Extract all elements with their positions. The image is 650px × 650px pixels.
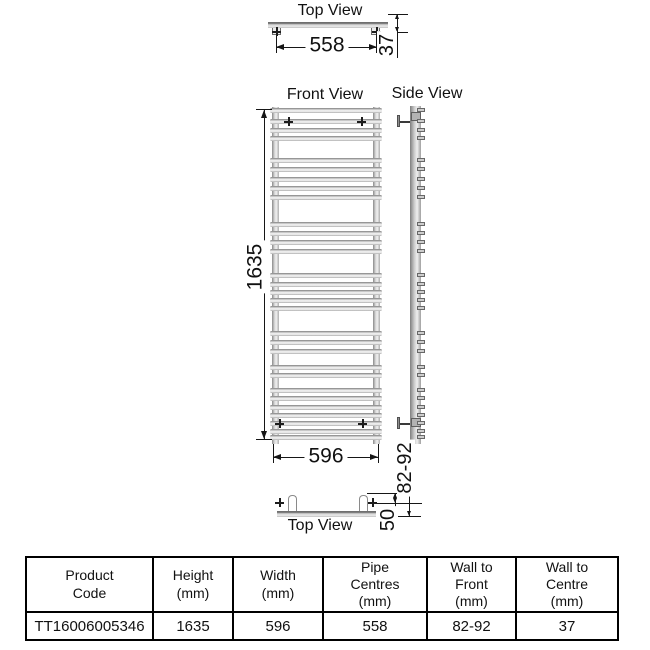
bar-end-knob (417, 128, 425, 132)
header-wall-to-front: Wall to Front (mm) (427, 557, 516, 612)
bar-end-knob (417, 177, 425, 181)
cell-pipe-centres: 558 (323, 612, 427, 640)
header-product-code: Product Code (26, 557, 153, 612)
side-view-wall-plate-top (397, 115, 400, 127)
bar-end-knob (417, 435, 425, 439)
side-view-label: Side View (392, 85, 463, 103)
bar-end-knob (417, 186, 425, 190)
towel-bar (270, 108, 382, 113)
side-view-bracket-arm-bottom (399, 423, 410, 425)
bar-end-knob (417, 388, 425, 392)
cell-width: 596 (233, 612, 323, 640)
dim-37-arrow-up (395, 14, 399, 19)
towel-bar (270, 388, 382, 393)
cell-product-code: TT16006005346 (26, 612, 153, 640)
towel-bar (270, 306, 382, 311)
top-view-lower-label: Top View (288, 517, 353, 535)
bar-end-knob (417, 108, 425, 112)
dim-50-value: 50 (378, 506, 398, 534)
towel-bar (270, 240, 382, 245)
dim-50-ref-line-bottom (377, 503, 422, 504)
towel-bar (270, 186, 382, 191)
dim-596-value: 596 (304, 446, 347, 467)
bar-end-knob (417, 421, 425, 425)
bar-end-knob (417, 373, 425, 377)
bar-end-knob (417, 222, 425, 226)
towel-bar (270, 413, 382, 418)
bar-end-knob (417, 282, 425, 286)
dim-1635-arrow-up (261, 110, 267, 118)
bar-end-knob (417, 405, 425, 409)
bar-end-knob (417, 167, 425, 171)
cell-wall-to-centre: 37 (516, 612, 618, 640)
dim-1635-value: 1635 (245, 241, 266, 294)
towel-bar (270, 231, 382, 236)
towel-bar (270, 331, 382, 336)
header-height: Height (mm) (153, 557, 233, 612)
bar-end-knob (417, 136, 425, 140)
towel-bar (270, 429, 382, 434)
top-view-lower-bracket-left (288, 495, 297, 511)
header-pipe-centres: Pipe Centres (mm) (323, 557, 427, 612)
towel-bar (270, 396, 382, 401)
bar-end-knob (417, 273, 425, 277)
side-view-bracket-arm-top (399, 121, 410, 123)
towel-bar (270, 373, 382, 378)
dim-558-arrow-left (276, 44, 284, 50)
bracket-mark-icon (275, 498, 284, 507)
top-view-upper-label: Top View (298, 2, 363, 20)
towel-bar (270, 177, 382, 182)
front-view-label: Front View (287, 86, 363, 104)
dim-558-value: 558 (305, 35, 348, 56)
bar-end-knob (417, 429, 425, 433)
towel-bar (270, 195, 382, 200)
bracket-mark-icon (272, 27, 281, 36)
bar-end-knob (417, 340, 425, 344)
towel-bar (270, 222, 382, 227)
towel-bar (270, 340, 382, 345)
towel-bar (270, 365, 382, 370)
spec-table-data-row: TT16006005346 1635 596 558 82-92 37 (26, 612, 618, 640)
bar-end-knob (417, 396, 425, 400)
towel-bar (270, 158, 382, 163)
bar-end-knob (417, 231, 425, 235)
towel-bar (270, 290, 382, 295)
dim-596-arrow-left (273, 454, 281, 460)
dim-50-arrow-down (393, 498, 397, 503)
towel-bar (270, 128, 382, 133)
towel-bar (270, 298, 382, 303)
bar-end-knob (417, 158, 425, 162)
towel-bar (270, 405, 382, 410)
bar-end-knob (417, 365, 425, 369)
dim-596-arrow-right (370, 454, 378, 460)
spec-table: Product Code Height (mm) Width (mm) Pipe… (25, 556, 619, 641)
bracket-mark-icon (368, 498, 377, 507)
bar-end-knob (417, 306, 425, 310)
bar-end-knob (417, 331, 425, 335)
header-width: Width (mm) (233, 557, 323, 612)
towel-bar (270, 249, 382, 254)
cell-height: 1635 (153, 612, 233, 640)
technical-drawing-canvas: Top View 558 37 Front View 1635 596 Side… (0, 0, 650, 650)
bar-end-knob (417, 349, 425, 353)
bracket-mark-icon (358, 419, 367, 428)
towel-bar (270, 136, 382, 141)
dim-596-ext-right (378, 444, 379, 463)
towel-bar (270, 349, 382, 354)
cell-wall-to-front: 82-92 (427, 612, 516, 640)
bar-end-knob (417, 249, 425, 253)
dim-1635-arrow-down (261, 431, 267, 439)
bar-end-knob (417, 119, 425, 123)
bracket-mark-icon (357, 117, 366, 126)
bar-end-knob (417, 298, 425, 302)
towel-bar (270, 282, 382, 287)
towel-bar (270, 167, 382, 172)
dim-82-92-value: 82-92 (395, 439, 415, 496)
top-view-lower-bracket-right (359, 495, 368, 511)
top-view-upper-radiator-bar (268, 22, 388, 28)
header-wall-to-centre: Wall to Centre (mm) (516, 557, 618, 612)
bracket-mark-icon (275, 419, 284, 428)
bar-end-knob (417, 290, 425, 294)
towel-bar (270, 435, 382, 440)
bracket-mark-icon (284, 117, 293, 126)
dim-37-value: 37 (377, 31, 397, 59)
spec-table-header-row: Product Code Height (mm) Width (mm) Pipe… (26, 557, 618, 612)
towel-bar (270, 273, 382, 278)
bar-end-knob (417, 413, 425, 417)
bar-end-knob (417, 195, 425, 199)
bar-end-knob (417, 240, 425, 244)
side-view-wall-plate-bottom (397, 417, 400, 429)
